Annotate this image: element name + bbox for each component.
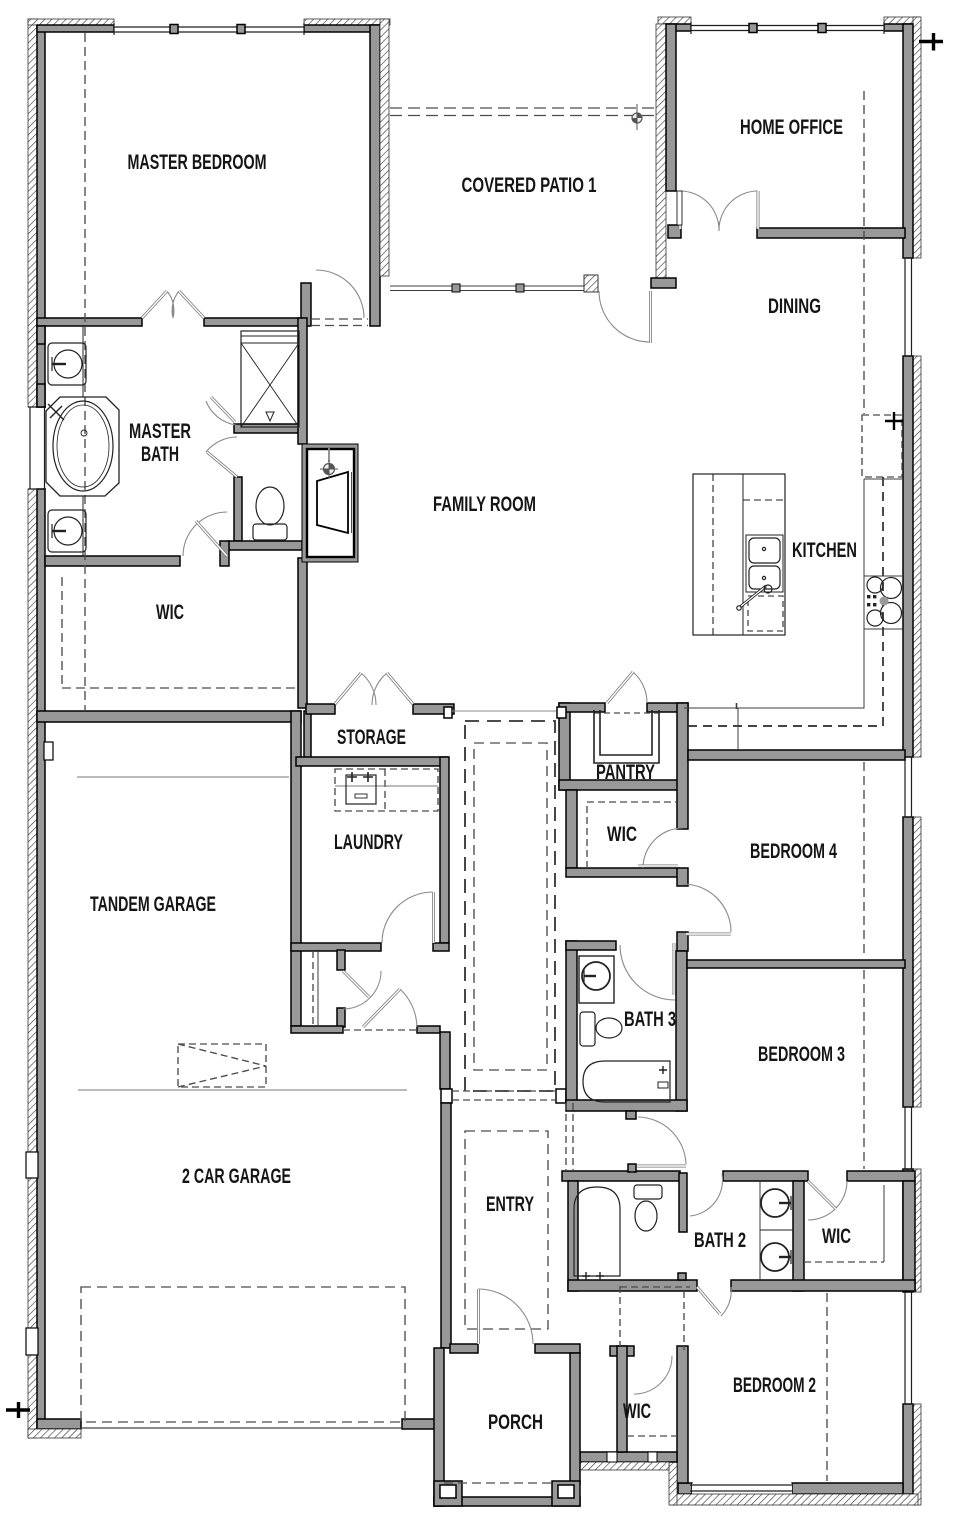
svg-text:MASTER: MASTER <box>129 420 191 443</box>
svg-text:WIC: WIC <box>822 1225 851 1248</box>
svg-text:BATH 2: BATH 2 <box>694 1229 746 1252</box>
svg-text:STORAGE: STORAGE <box>337 726 406 749</box>
svg-text:BEDROOM 4: BEDROOM 4 <box>750 840 837 863</box>
svg-text:MASTER BEDROOM: MASTER BEDROOM <box>128 151 267 174</box>
svg-text:BEDROOM 3: BEDROOM 3 <box>758 1043 845 1066</box>
svg-text:KITCHEN: KITCHEN <box>792 539 857 562</box>
svg-text:PANTRY: PANTRY <box>596 761 655 784</box>
svg-text:PORCH: PORCH <box>488 1411 543 1434</box>
svg-text:COVERED PATIO 1: COVERED PATIO 1 <box>462 174 597 197</box>
svg-text:BATH: BATH <box>141 443 179 466</box>
svg-text:HOME OFFICE: HOME OFFICE <box>740 116 843 139</box>
svg-text:ENTRY: ENTRY <box>486 1193 534 1216</box>
svg-text:WIC: WIC <box>156 601 184 624</box>
svg-text:FAMILY ROOM: FAMILY ROOM <box>433 493 536 516</box>
svg-text:DINING: DINING <box>768 295 821 318</box>
svg-text:2 CAR GARAGE: 2 CAR GARAGE <box>182 1165 291 1188</box>
svg-text:BEDROOM 2: BEDROOM 2 <box>733 1374 816 1397</box>
svg-text:WIC: WIC <box>623 1400 651 1423</box>
svg-text:LAUNDRY: LAUNDRY <box>334 831 403 854</box>
svg-text:TANDEM GARAGE: TANDEM GARAGE <box>90 893 216 916</box>
svg-text:WIC: WIC <box>607 823 637 846</box>
svg-text:BATH 3: BATH 3 <box>624 1008 676 1031</box>
